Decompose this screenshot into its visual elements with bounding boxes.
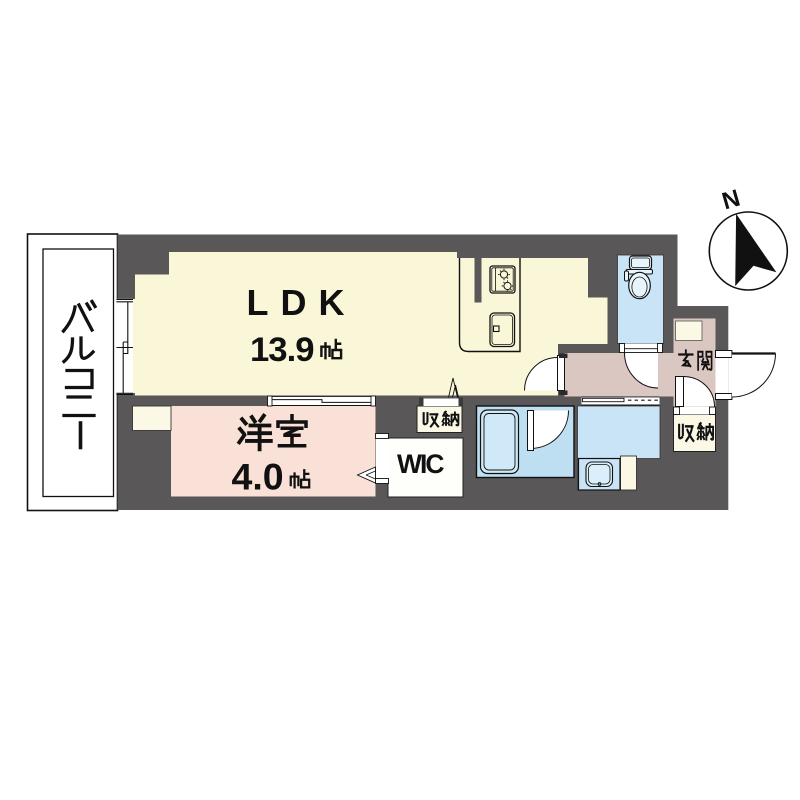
svg-text:WIC: WIC xyxy=(397,449,444,479)
svg-text:LDK: LDK xyxy=(247,282,357,323)
svg-text:4.0: 4.0 xyxy=(232,456,284,498)
svg-text:13.9: 13.9 xyxy=(250,331,314,369)
svg-text:N: N xyxy=(719,185,743,216)
